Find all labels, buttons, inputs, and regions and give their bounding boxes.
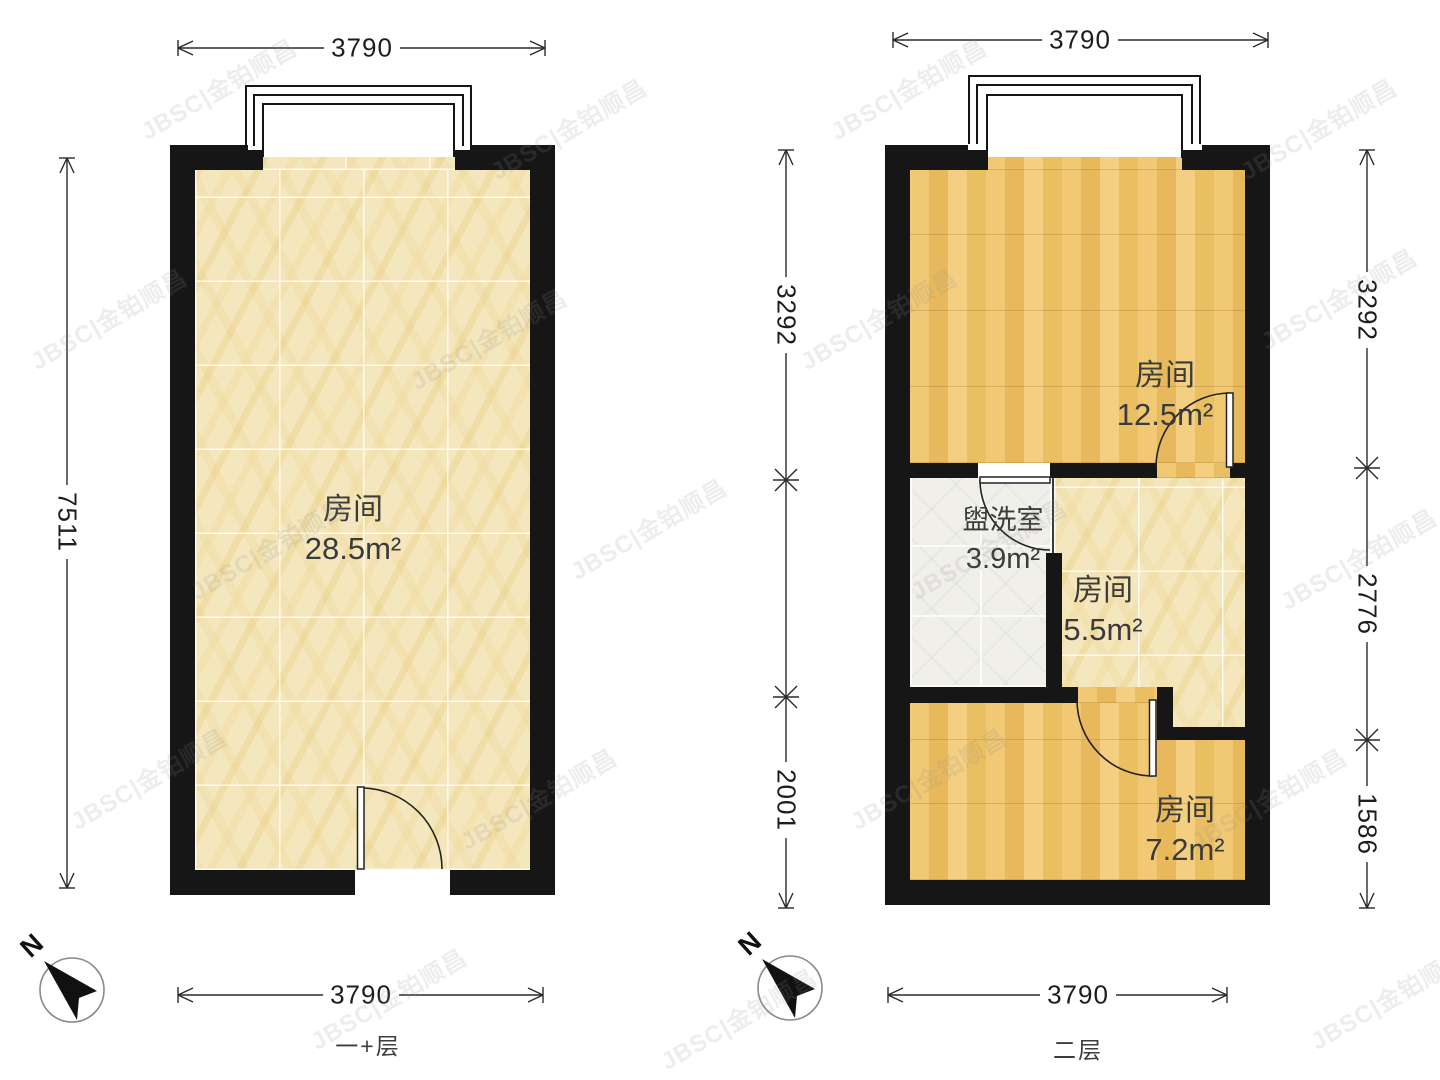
floor2-wall-mid-a1 — [885, 463, 978, 478]
room-area: 28.5m² — [305, 529, 401, 568]
floor2-dim-right-lower: 1586 — [1352, 786, 1383, 862]
floor2-wall-mid-a2 — [1050, 463, 1157, 478]
room-area: 5.5m² — [1063, 610, 1142, 649]
compass-circle — [40, 958, 104, 1022]
floor2-wall-right — [1245, 145, 1270, 905]
floor2-door-threshold-top — [1157, 463, 1230, 478]
floor1-dim-bottom: 3790 — [323, 980, 399, 1011]
room-area: 12.5m² — [1117, 395, 1213, 434]
floor1-dim-top: 3790 — [324, 33, 400, 64]
floor2-dim-left-lower: 2001 — [771, 762, 802, 838]
floor1-room-label: 房间 28.5m² — [305, 490, 401, 568]
floor2-dim-left-upper: 3292 — [771, 277, 802, 353]
compass-circle — [758, 956, 822, 1020]
room-area: 7.2m² — [1145, 830, 1224, 869]
floor2-wall-left — [885, 145, 910, 905]
floor1-wall-left — [170, 145, 195, 895]
watermark: JBSC|金铂顺昌 — [23, 258, 193, 376]
compass-floor2 — [758, 956, 822, 1020]
floor2-washroom-divider-wall — [1046, 553, 1062, 703]
floor1-wall-bottom-right — [450, 870, 555, 895]
floor2-door-threshold-bottom — [1078, 687, 1157, 703]
compass-needle — [762, 959, 815, 1018]
watermark: JBSC|金铂顺昌 — [563, 468, 733, 586]
floor2-room-bottom-label: 房间 7.2m² — [1145, 791, 1224, 869]
floor1-name: 一+层 — [335, 1027, 400, 1061]
floor2-dim-right-middle: 2776 — [1352, 566, 1383, 642]
floor2-dim-bottom: 3790 — [1040, 980, 1116, 1011]
floor2-room-middle-label: 房间 5.5m² — [1063, 571, 1142, 649]
floor1-wall-right — [530, 145, 555, 895]
watermark: JBSC|金铂顺昌 — [653, 958, 823, 1076]
floor2-dim-top: 3790 — [1042, 25, 1118, 56]
compass-floor1 — [40, 958, 104, 1022]
floor2-name: 二层 — [1053, 1031, 1103, 1065]
floor1-north-letter: N — [14, 928, 49, 964]
room-area: 3.9m² — [963, 540, 1044, 579]
compass-needle — [44, 961, 97, 1020]
floor2-bedroom-top-label: 房间 12.5m² — [1117, 356, 1213, 434]
room-name: 房间 — [305, 490, 401, 529]
floorplan-image: 3790 7511 3790 房间 28.5m² 一+层 N 3790 3790… — [0, 0, 1440, 1080]
floor2-washroom-label: 盥洗室 3.9m² — [963, 501, 1044, 579]
floor2-room-bottom-floor-upper — [910, 703, 1173, 740]
floor2-wall-bottom — [885, 880, 1270, 905]
room-name: 房间 — [1145, 791, 1224, 830]
floor2-washroom-divider-line — [1052, 478, 1054, 556]
room-name: 盥洗室 — [963, 501, 1044, 540]
floor1-wall-bottom-left — [170, 870, 355, 895]
bay-window-inner-line — [986, 94, 1183, 158]
floor2-north-letter: N — [732, 926, 767, 962]
room-name: 房间 — [1063, 571, 1142, 610]
floor2-door-stub-wall — [1157, 687, 1173, 740]
room-name: 房间 — [1117, 356, 1213, 395]
watermark: JBSC|金铂顺昌 — [1253, 238, 1423, 356]
floor2-dim-right-upper: 3292 — [1352, 272, 1383, 348]
floor2-bay-window — [968, 75, 1202, 170]
floor2-notch-wall — [1173, 727, 1270, 740]
watermark: JBSC|金铂顺昌 — [1303, 938, 1440, 1056]
floor1-dim-left: 7511 — [52, 485, 83, 559]
floor2-washroom-bottom-wall — [885, 687, 1078, 703]
bay-window-inner-line — [262, 103, 455, 157]
floor2-wall-mid-a3 — [1230, 463, 1270, 478]
floor1-bay-window — [245, 85, 473, 175]
